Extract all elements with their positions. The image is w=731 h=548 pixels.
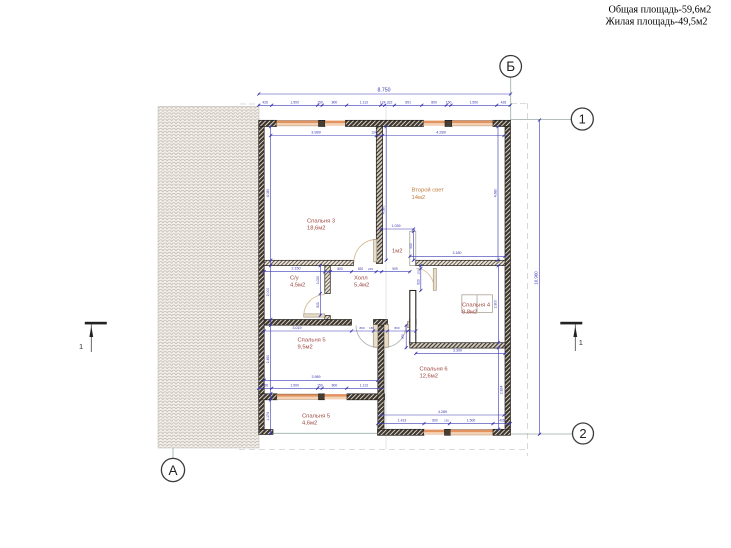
svg-text:1.500: 1.500	[290, 100, 299, 104]
svg-text:Спальня 4: Спальня 4	[462, 303, 491, 309]
svg-text:Спальня 3: Спальня 3	[307, 219, 335, 225]
svg-text:426: 426	[499, 419, 505, 423]
svg-text:2.800: 2.800	[494, 300, 498, 309]
svg-text:909: 909	[392, 267, 398, 271]
svg-text:1.500: 1.500	[290, 383, 299, 387]
svg-text:150: 150	[317, 383, 323, 387]
svg-text:Общая площадь-59,6м2: Общая площадь-59,6м2	[609, 5, 712, 16]
svg-text:1.113: 1.113	[360, 100, 368, 104]
svg-text:1.113: 1.113	[360, 383, 368, 387]
svg-text:820: 820	[416, 279, 420, 285]
svg-text:124: 124	[380, 100, 386, 104]
svg-text:4.680: 4.680	[382, 206, 386, 215]
svg-text:800: 800	[432, 419, 438, 423]
svg-text:800: 800	[337, 267, 343, 271]
svg-text:3.989: 3.989	[311, 131, 321, 135]
svg-text:1.500: 1.500	[470, 100, 479, 104]
svg-text:4.080: 4.080	[266, 189, 270, 198]
svg-text:12,6м2: 12,6м2	[420, 374, 439, 380]
svg-text:2.824: 2.824	[500, 386, 504, 395]
svg-text:3.989: 3.989	[312, 375, 321, 379]
svg-text:4,6м2: 4,6м2	[302, 421, 317, 427]
svg-text:3.300: 3.300	[453, 349, 462, 353]
svg-text:9,5м2: 9,5м2	[298, 345, 313, 351]
svg-text:3.180: 3.180	[453, 251, 462, 255]
svg-text:800: 800	[332, 100, 338, 104]
svg-text:900: 900	[409, 243, 413, 249]
svg-text:900: 900	[401, 334, 405, 339]
svg-text:8,8м2: 8,8м2	[462, 310, 477, 316]
svg-text:150: 150	[446, 100, 452, 104]
svg-text:800: 800	[431, 100, 437, 104]
svg-text:800: 800	[394, 326, 399, 330]
svg-text:18,6м2: 18,6м2	[307, 226, 326, 232]
svg-text:Б: Б	[506, 59, 515, 74]
svg-text:150: 150	[444, 419, 449, 423]
svg-text:2: 2	[579, 426, 586, 441]
svg-text:1: 1	[579, 338, 583, 347]
svg-text:800: 800	[332, 383, 338, 387]
svg-text:Спальня 5: Спальня 5	[302, 414, 330, 420]
svg-text:1м2: 1м2	[392, 249, 402, 255]
svg-text:891: 891	[405, 100, 411, 104]
svg-text:Спальня 6: Спальня 6	[420, 367, 448, 373]
svg-text:1: 1	[79, 342, 83, 351]
svg-text:4,5м2: 4,5м2	[290, 283, 305, 289]
svg-text:820: 820	[358, 267, 364, 271]
svg-text:5,4м2: 5,4м2	[354, 283, 369, 289]
svg-text:4.289: 4.289	[436, 131, 446, 135]
svg-text:800: 800	[359, 326, 364, 330]
svg-text:2.150: 2.150	[292, 267, 301, 271]
svg-text:14м2: 14м2	[412, 195, 426, 201]
svg-text:4.680: 4.680	[494, 189, 498, 198]
svg-text:А: А	[168, 463, 177, 478]
svg-text:426: 426	[501, 100, 507, 104]
svg-text:Жилая площадь-49,5м2: Жилая площадь-49,5м2	[606, 16, 708, 27]
svg-text:150: 150	[416, 269, 420, 274]
svg-text:124: 124	[371, 131, 377, 135]
svg-text:2.000: 2.000	[266, 288, 270, 297]
svg-text:1.039: 1.039	[392, 224, 401, 228]
svg-text:1.020: 1.020	[316, 276, 320, 284]
svg-text:1: 1	[579, 112, 586, 127]
svg-text:426: 426	[262, 100, 268, 104]
svg-text:150: 150	[317, 100, 323, 104]
svg-text:4.289: 4.289	[438, 410, 447, 414]
svg-text:426: 426	[262, 383, 268, 387]
svg-text:Второй свет: Второй свет	[412, 187, 445, 194]
svg-text:322: 322	[387, 100, 393, 104]
svg-text:10.900: 10.900	[534, 271, 539, 285]
svg-text:215: 215	[368, 267, 373, 271]
svg-text:1.174: 1.174	[266, 412, 270, 421]
svg-text:1.413: 1.413	[398, 419, 407, 423]
svg-text:Холл: Холл	[354, 276, 368, 282]
svg-text:820: 820	[316, 302, 320, 308]
svg-text:С/у: С/у	[290, 276, 299, 282]
svg-text:3.019: 3.019	[293, 326, 302, 330]
svg-text:Спальня 5: Спальня 5	[298, 338, 326, 344]
svg-text:150: 150	[369, 326, 374, 330]
svg-text:8.750: 8.750	[378, 87, 391, 93]
svg-text:2.450: 2.450	[266, 355, 270, 364]
svg-text:1.500: 1.500	[467, 419, 476, 423]
